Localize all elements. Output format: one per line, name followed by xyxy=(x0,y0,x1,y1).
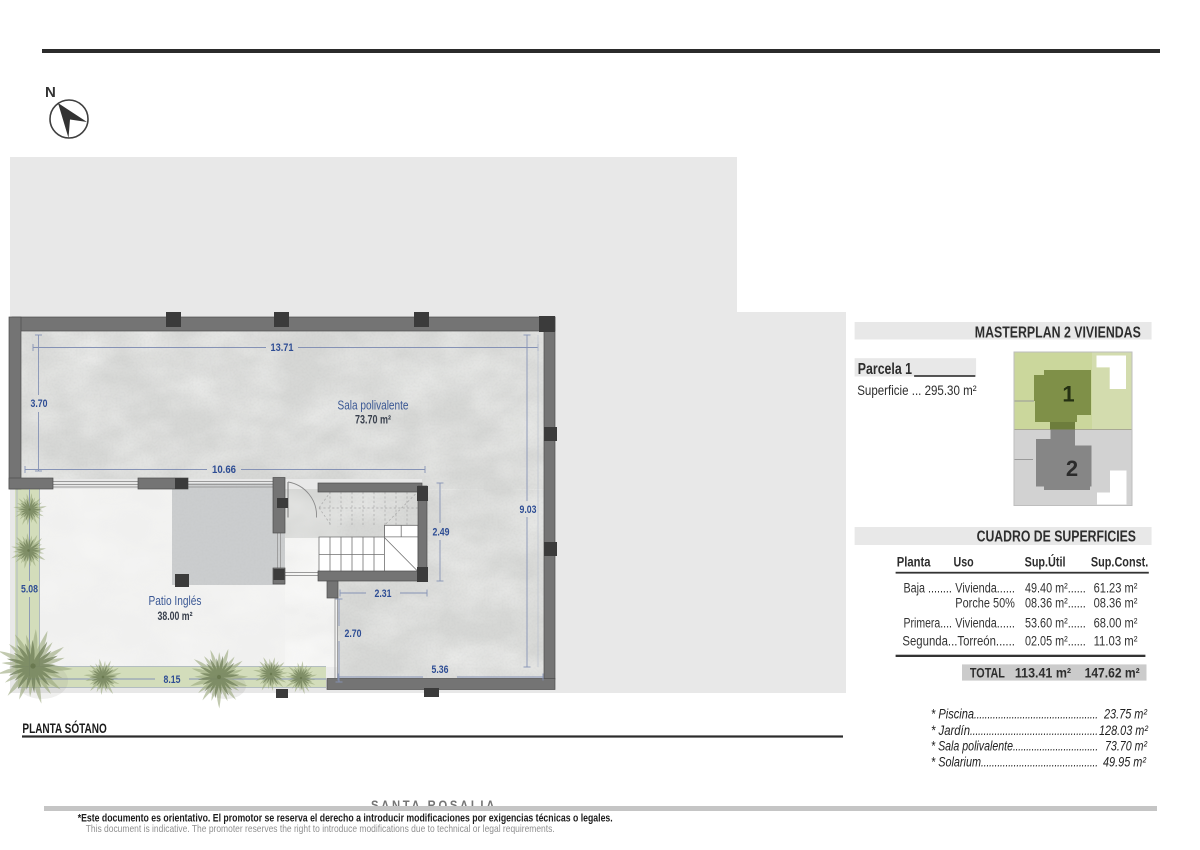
svg-text:Superficie ... 295.30 m²: Superficie ... 295.30 m² xyxy=(857,383,977,398)
svg-text:* Piscina: * Piscina xyxy=(931,707,974,722)
svg-text:113.41 m²: 113.41 m² xyxy=(1015,664,1071,680)
svg-text:147.62 m²: 147.62 m² xyxy=(1085,664,1140,680)
svg-text:TOTAL: TOTAL xyxy=(970,664,1005,680)
svg-text:This document is indicative. T: This document is indicative. The promote… xyxy=(86,823,555,835)
svg-text:08.36 m²......: 08.36 m²...... xyxy=(1025,596,1086,611)
svg-text:..............................: ........................................… xyxy=(981,755,1098,770)
svg-text:1: 1 xyxy=(1062,382,1074,407)
svg-text:128.03 m²: 128.03 m² xyxy=(1099,723,1148,738)
svg-text:Planta: Planta xyxy=(897,555,931,570)
svg-text:11.03 m²: 11.03 m² xyxy=(1094,634,1138,649)
svg-text:02.05 m²......: 02.05 m²...... xyxy=(1025,634,1086,649)
svg-text:Vivienda......: Vivienda...... xyxy=(955,616,1015,631)
svg-text:49.40 m²......: 49.40 m²...... xyxy=(1025,581,1086,596)
svg-text:Primera....: Primera.... xyxy=(904,616,952,631)
svg-text:Baja ........: Baja ........ xyxy=(904,581,952,596)
svg-text:Vivienda......: Vivienda...... xyxy=(955,581,1015,596)
svg-text:23.75 m²: 23.75 m² xyxy=(1103,707,1147,722)
svg-text:PLANTA SÓTANO: PLANTA SÓTANO xyxy=(22,719,106,736)
svg-text:CUADRO DE SUPERFICIES: CUADRO DE SUPERFICIES xyxy=(977,528,1137,545)
svg-text:Sup.Const.: Sup.Const. xyxy=(1091,555,1148,570)
svg-text:49.95 m²: 49.95 m² xyxy=(1103,755,1146,770)
svg-text:Segunda...Torreón......: Segunda...Torreón...... xyxy=(902,634,1015,649)
svg-text:73.70 m²: 73.70 m² xyxy=(1105,739,1147,754)
svg-text:Parcela 1: Parcela 1 xyxy=(858,361,912,378)
svg-text:Uso: Uso xyxy=(954,555,974,570)
svg-text:* Solarium: * Solarium xyxy=(931,755,981,770)
svg-text:2: 2 xyxy=(1066,456,1078,481)
svg-text:61.23 m²: 61.23 m² xyxy=(1094,581,1138,596)
svg-text:..............................: ........................................… xyxy=(970,723,1098,738)
svg-text:..............................: ................................ xyxy=(1013,739,1098,754)
svg-text:..............................: ........................................… xyxy=(974,707,1098,722)
svg-text:Sup.Útil: Sup.Útil xyxy=(1025,555,1066,570)
svg-text:68.00 m²: 68.00 m² xyxy=(1094,616,1138,631)
svg-text:08.36 m²: 08.36 m² xyxy=(1094,596,1138,611)
svg-text:* Jardín: * Jardín xyxy=(931,723,970,738)
svg-text:MASTERPLAN 2 VIVIENDAS: MASTERPLAN 2 VIVIENDAS xyxy=(975,325,1141,342)
svg-text:* Sala polivalente: * Sala polivalente xyxy=(931,739,1013,754)
svg-text:53.60 m²......: 53.60 m²...... xyxy=(1025,616,1086,631)
svg-text:Porche 50%: Porche 50% xyxy=(955,596,1015,611)
